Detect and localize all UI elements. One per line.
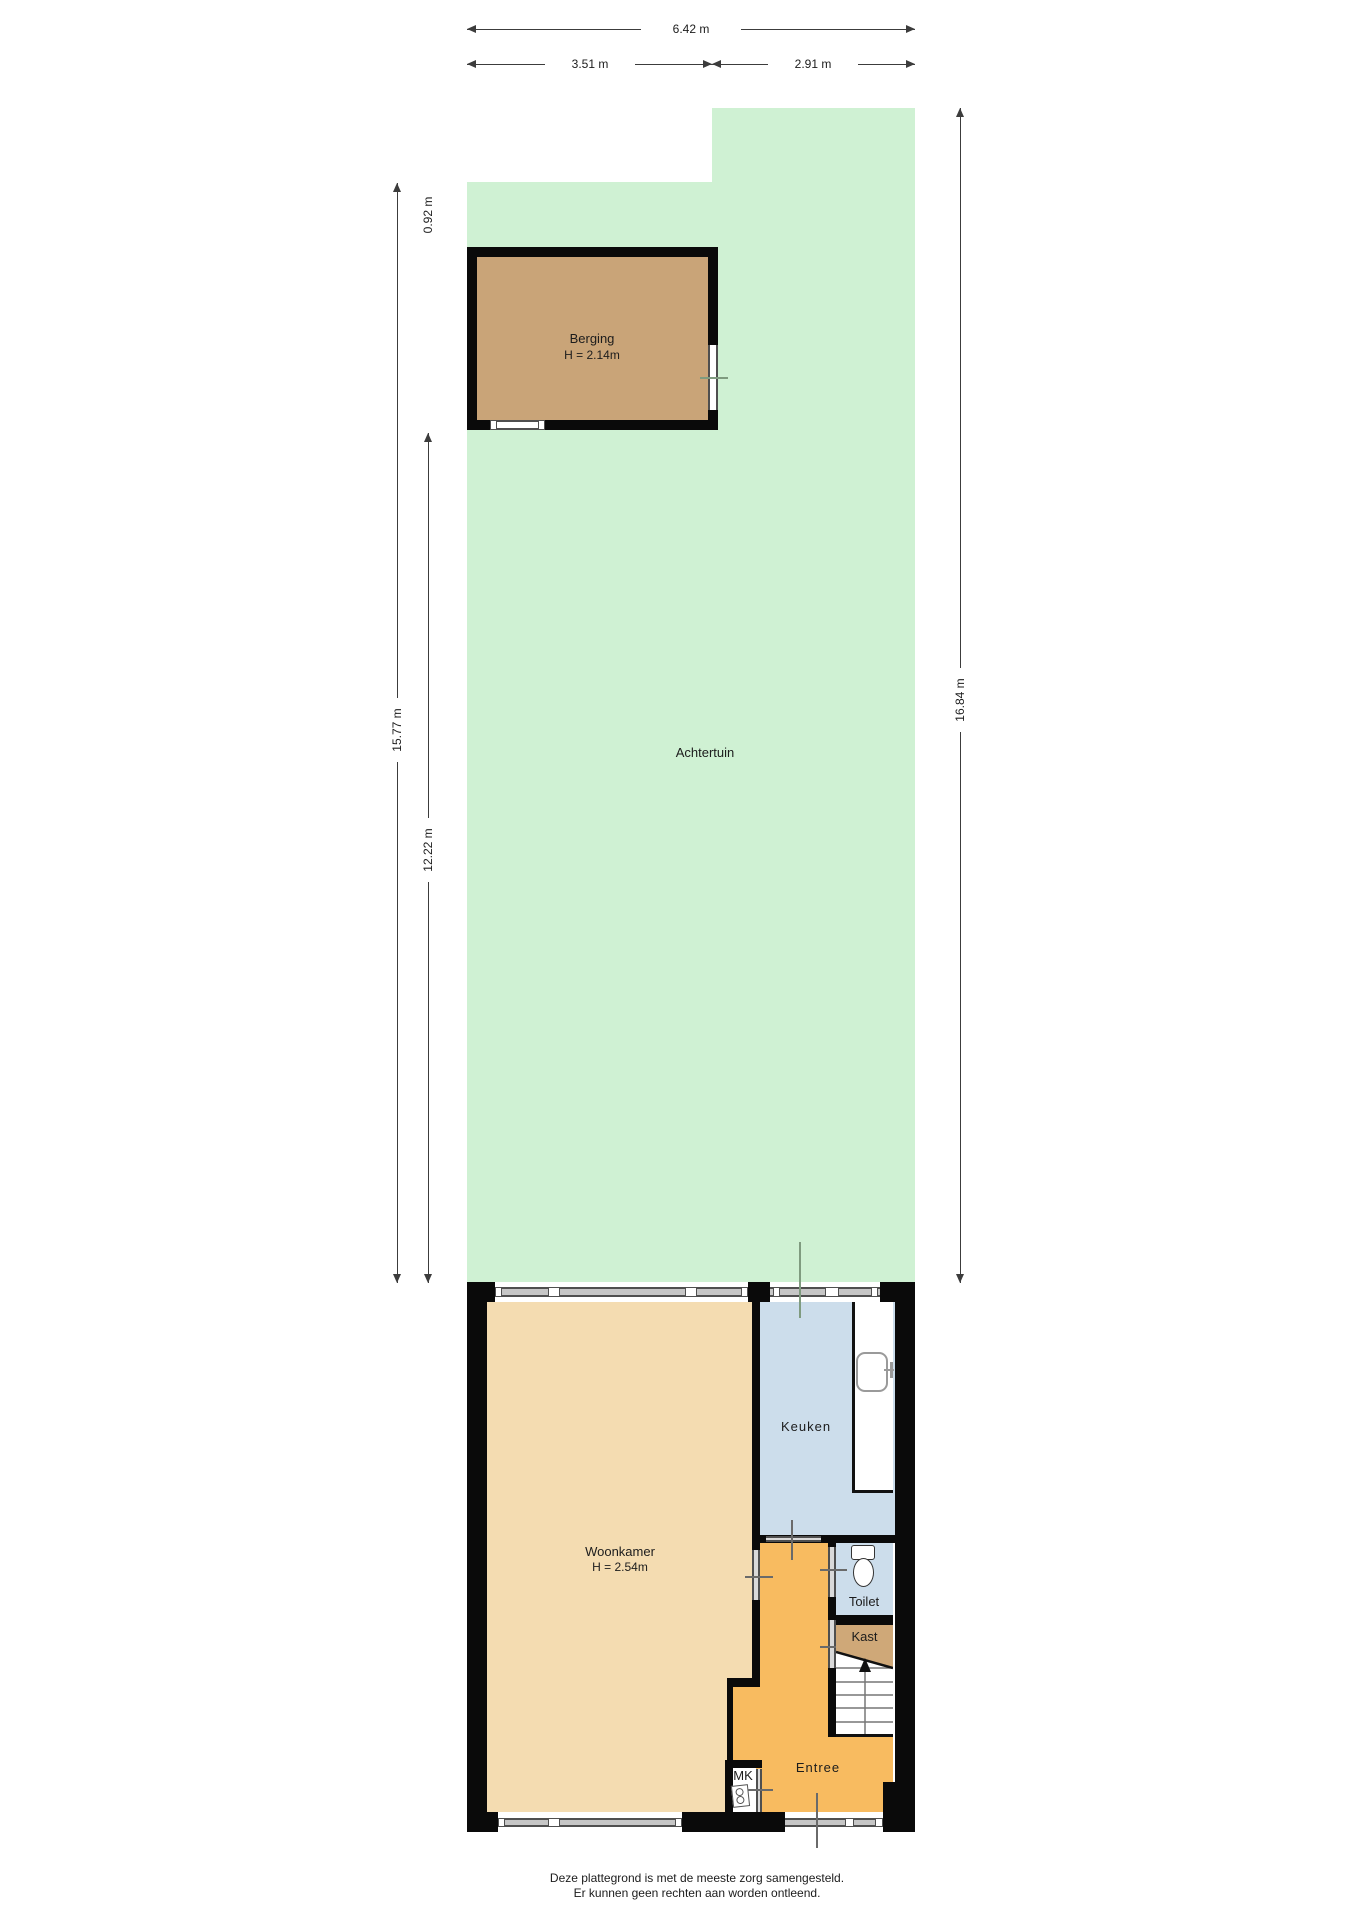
dim-width-left-label: 3.51 m xyxy=(545,57,635,72)
berging-label: Berging xyxy=(517,331,667,346)
woonkamer-door xyxy=(752,1550,760,1600)
rear-window-strip-right xyxy=(770,1287,880,1297)
floor-plan-page: { "dimensions": { "total_width": "6.42 m… xyxy=(0,0,1358,1920)
wall-segment xyxy=(467,1812,498,1832)
wall-segment xyxy=(682,1812,785,1832)
window-mullion xyxy=(548,1287,560,1297)
keuken-door-marker xyxy=(791,1520,793,1560)
berging-height-label: H = 2.14m xyxy=(517,348,667,362)
berging-door-marker xyxy=(700,377,728,379)
window-mullion xyxy=(548,1818,560,1827)
dim-garden-depth-outer-label: 15.77 m xyxy=(389,698,405,762)
toilet-kast-wall xyxy=(836,1615,893,1625)
window-mullion xyxy=(498,1818,505,1827)
mk-label: MK xyxy=(727,1768,759,1783)
dim-garden-offset-label: 0.92 m xyxy=(420,183,436,247)
toilet-door xyxy=(828,1547,836,1597)
garden-area-upper xyxy=(712,108,915,184)
wall-segment xyxy=(883,1812,915,1832)
meter-icon xyxy=(731,1784,750,1808)
keuken-label: Keuken xyxy=(756,1419,856,1434)
right-wall xyxy=(895,1302,915,1782)
wall-segment xyxy=(748,1282,770,1302)
woonkamer-height-label: H = 2.54m xyxy=(545,1560,695,1574)
mk-top-wall xyxy=(725,1760,762,1768)
rear-door-line xyxy=(799,1242,801,1318)
toilet-label: Toilet xyxy=(824,1594,904,1609)
keuken-door xyxy=(766,1536,821,1542)
hall-left-wall xyxy=(727,1687,733,1760)
left-wall xyxy=(467,1302,487,1812)
dim-total-width-label: 6.42 m xyxy=(641,22,741,37)
wall-jog xyxy=(727,1678,760,1687)
sink-icon xyxy=(856,1352,888,1392)
toilet-door-marker xyxy=(820,1569,847,1571)
entree-label: Entree xyxy=(768,1760,868,1775)
window-mullion xyxy=(871,1287,878,1297)
front-door-marker xyxy=(816,1793,818,1848)
kast-label: Kast xyxy=(836,1629,893,1644)
disclaimer-line2: Er kunnen geen rechten aan worden ontlee… xyxy=(397,1886,997,1901)
window-mullion xyxy=(495,1287,502,1297)
rear-window-strip-left xyxy=(495,1287,748,1297)
window-mullion xyxy=(773,1287,780,1297)
dim-right-depth-label: 16.84 m xyxy=(952,668,968,732)
wall-segment xyxy=(880,1282,915,1302)
sink-faucet-knob xyxy=(890,1362,893,1378)
disclaimer-line1: Deze plattegrond is met de meeste zorg s… xyxy=(397,1871,997,1886)
window-mullion xyxy=(825,1287,839,1297)
woonkamer-label: Woonkamer xyxy=(545,1544,695,1559)
wall-segment xyxy=(467,1282,495,1302)
window-mullion xyxy=(875,1818,883,1827)
window-mullion xyxy=(675,1818,682,1827)
kast-door xyxy=(828,1620,836,1668)
kitchen-counter xyxy=(852,1302,893,1493)
garden-label: Achtertuin xyxy=(605,745,805,760)
woonkamer-door-marker xyxy=(745,1576,773,1578)
window-mullion xyxy=(845,1818,854,1827)
window-mullion xyxy=(741,1287,748,1297)
front-window-strip-left xyxy=(498,1818,682,1827)
toilet-bowl-icon xyxy=(853,1558,874,1587)
front-door-strip xyxy=(785,1818,883,1827)
woonkamer-keuken-wall xyxy=(752,1302,760,1678)
dim-width-right-label: 2.91 m xyxy=(768,57,858,72)
window-mullion xyxy=(685,1287,697,1297)
mk-door-marker xyxy=(745,1789,773,1791)
berging-window xyxy=(490,420,545,430)
dim-garden-depth-lower-label: 12.22 m xyxy=(420,818,436,882)
disclaimer: Deze plattegrond is met de meeste zorg s… xyxy=(397,1871,997,1901)
